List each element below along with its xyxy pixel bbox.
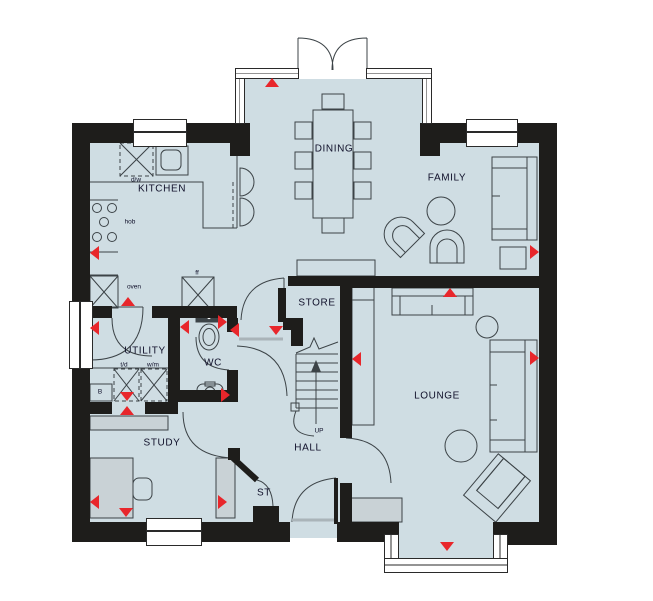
room-label-lounge: LOUNGE [414,391,460,402]
label-dishwasher: d/w [131,177,141,184]
marker-study-wall [90,495,99,509]
wall-utility-study-b [145,402,178,414]
family-shelf-unit [297,260,375,276]
marker-study-desk [119,508,133,517]
wall-bottom-d [508,522,557,545]
label-oven: oven [127,284,141,291]
dining-bay-stub-left [230,123,250,156]
wall-hall-lounge-lower [340,483,352,531]
wall-left-lower [72,367,90,542]
lounge-sofa-top [392,288,473,315]
marker-wc-left [180,320,189,334]
wall-hall-lounge-upper [340,288,352,438]
dining-table-and-chairs [295,94,371,233]
sink-icon [156,146,188,175]
marker-dining-bay [265,78,279,87]
room-label-family: FAMILY [428,173,466,184]
family-sofa [492,157,537,240]
family-tub-chair [430,230,464,263]
room-label-wc: WC [204,358,222,369]
breakfast-bar-stools [240,168,254,226]
marker-utility-study-a [120,392,134,401]
lounge-sideboard [350,498,402,522]
family-window [466,119,518,147]
marker-family-wall [530,245,539,259]
kitchen-window [133,119,187,147]
kitchen-counter [90,143,237,275]
room-label-study: STUDY [144,438,181,449]
room-label-store: STORE [298,298,335,309]
oven-icon [90,276,118,308]
hob-icon [93,204,117,242]
wall-store-corner-b [291,330,303,346]
label-up: UP [314,428,323,435]
front-door-leaf [334,478,338,524]
utility-external-door [69,301,93,369]
wall-store-top [288,276,340,286]
lounge-armchair-angled [464,454,531,522]
room-label-dining: DINING [315,144,354,155]
dining-bay-window-top-right [366,68,432,79]
marker-kitchen-wall [90,246,99,260]
marker-utility-door [121,297,135,306]
marker-lounge-top [443,288,457,297]
room-label-kitchen: KITCHEN [138,184,186,195]
marker-store-door [269,326,283,335]
wall-family-lounge [340,276,557,288]
marker-study-right [218,495,227,509]
room-label-st: ST [257,488,271,499]
marker-utility-ext-door [90,321,99,335]
marker-wc-basin [221,388,230,402]
marker-utility-study-b [120,406,134,415]
lounge-round-table [445,430,477,462]
marker-kitchen-hall [230,323,239,337]
study-furniture [90,416,235,518]
label-boiler: B [98,389,102,396]
lounge-bay-window-bottom [384,558,508,573]
floorplan: KITCHEN DINING FAMILY STORE UTILITY WC L… [0,0,653,601]
wall-store-left-stub [278,288,286,322]
wall-right [539,143,557,545]
wall-store-corner-a [283,318,303,330]
wall-left-upper [72,143,90,303]
wall-bottom-a [72,522,148,542]
wall-kitchen-utility-a [90,306,112,318]
st-door-leaf [233,458,257,480]
family-round-table [427,197,455,225]
wall-bottom-b [200,522,290,542]
marker-lounge-bay [440,542,454,551]
wall-utility-study-a [72,402,112,414]
dining-bay-stub-right [420,123,440,156]
dishwasher-icon [120,143,153,176]
lounge-round-table-small [476,316,498,338]
staircase [291,338,338,436]
room-label-utility: UTILITY [124,346,165,357]
label-tumble-dryer: t/d [120,362,127,369]
marker-stairs-wall [352,352,361,366]
wall-utility-wc [168,318,180,402]
room-label-hall: HALL [294,443,321,454]
label-hob: hob [125,219,136,226]
label-fridge-freezer: ff [195,270,199,277]
family-tub-chair-angled [377,210,424,257]
family-side-table [500,247,526,269]
wall-st-stub [253,506,279,522]
marker-wc-door [218,315,227,329]
study-window [146,518,202,546]
label-washing-machine: w/m [147,362,159,369]
wall-study-stub [228,448,240,460]
marker-lounge-wall [530,351,539,365]
